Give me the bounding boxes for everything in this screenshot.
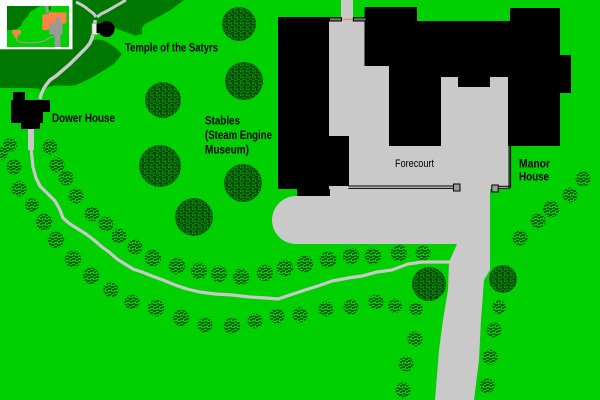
svg-text:Dower House: Dower House	[52, 111, 115, 125]
svg-text:Forecourt: Forecourt	[395, 158, 434, 170]
svg-text:Stables: Stables	[205, 114, 240, 128]
svg-text:House: House	[519, 170, 549, 184]
svg-text:Temple of the Satyrs: Temple of the Satyrs	[125, 41, 218, 55]
svg-text:(Steam Engine: (Steam Engine	[205, 128, 272, 142]
svg-text:Museum): Museum)	[205, 143, 249, 157]
